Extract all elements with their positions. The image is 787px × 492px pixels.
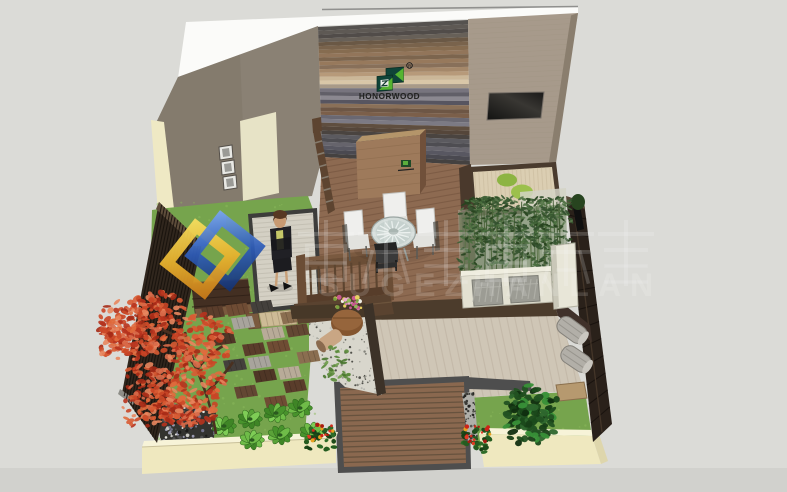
svg-text:SUGEZHANLAN: SUGEZHANLAN bbox=[318, 267, 662, 303]
svg-text:HONORWOOD: HONORWOOD bbox=[359, 92, 420, 101]
svg-text:R: R bbox=[408, 64, 411, 69]
